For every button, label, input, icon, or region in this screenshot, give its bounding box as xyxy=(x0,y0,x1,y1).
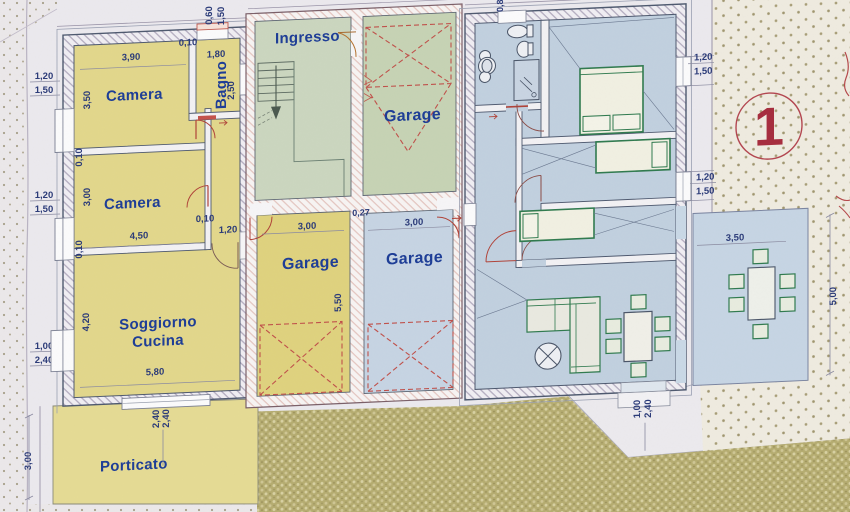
svg-text:0,80: 0,80 xyxy=(495,0,505,12)
svg-text:3,00: 3,00 xyxy=(298,221,316,233)
svg-text:1,80: 1,80 xyxy=(207,49,225,61)
svg-text:3,50: 3,50 xyxy=(82,91,93,110)
svg-text:Ingresso: Ingresso xyxy=(275,28,340,48)
svg-text:0,10: 0,10 xyxy=(179,37,197,49)
svg-text:0,10: 0,10 xyxy=(74,148,85,167)
svg-text:1,50: 1,50 xyxy=(35,204,54,215)
svg-text:2,40: 2,40 xyxy=(35,355,54,366)
svg-text:Bagno: Bagno xyxy=(213,60,230,109)
svg-text:1,20: 1,20 xyxy=(696,172,714,184)
svg-text:5,80: 5,80 xyxy=(146,367,164,379)
svg-text:1,00: 1,00 xyxy=(632,400,643,419)
svg-text:Garage: Garage xyxy=(386,249,443,269)
svg-text:Porticato: Porticato xyxy=(100,455,168,475)
svg-text:1,50: 1,50 xyxy=(216,6,227,25)
svg-text:Garage: Garage xyxy=(282,254,339,274)
svg-text:1,20: 1,20 xyxy=(694,52,712,64)
svg-text:1,20: 1,20 xyxy=(219,224,237,236)
svg-text:1,50: 1,50 xyxy=(696,186,714,198)
svg-text:1,20: 1,20 xyxy=(35,190,54,201)
svg-text:1: 1 xyxy=(754,96,784,157)
svg-text:4,50: 4,50 xyxy=(130,230,148,242)
svg-text:4,20: 4,20 xyxy=(81,313,92,332)
svg-text:5,00: 5,00 xyxy=(828,287,839,306)
svg-text:Camera: Camera xyxy=(106,86,163,106)
svg-text:0,10: 0,10 xyxy=(196,213,214,225)
svg-text:Cucina: Cucina xyxy=(132,332,184,351)
svg-text:3,00: 3,00 xyxy=(405,217,423,229)
svg-text:1,20: 1,20 xyxy=(35,71,54,82)
svg-text:0,60: 0,60 xyxy=(204,6,215,25)
svg-text:2,40: 2,40 xyxy=(643,399,654,418)
svg-text:3,90: 3,90 xyxy=(122,52,140,64)
svg-text:3,00: 3,00 xyxy=(23,452,34,471)
svg-text:0,10: 0,10 xyxy=(74,240,85,259)
svg-text:0,27: 0,27 xyxy=(352,207,370,218)
svg-text:1,00: 1,00 xyxy=(35,341,54,352)
svg-text:3,50: 3,50 xyxy=(726,232,744,244)
svg-text:Soggiorno: Soggiorno xyxy=(119,313,197,334)
svg-text:Camera: Camera xyxy=(104,194,161,214)
svg-text:2,40: 2,40 xyxy=(161,409,172,428)
svg-text:3,00: 3,00 xyxy=(82,188,93,207)
svg-text:1,50: 1,50 xyxy=(35,85,54,96)
svg-text:Garage: Garage xyxy=(384,106,441,126)
svg-text:1,50: 1,50 xyxy=(694,66,712,78)
svg-text:5,50: 5,50 xyxy=(333,293,344,312)
